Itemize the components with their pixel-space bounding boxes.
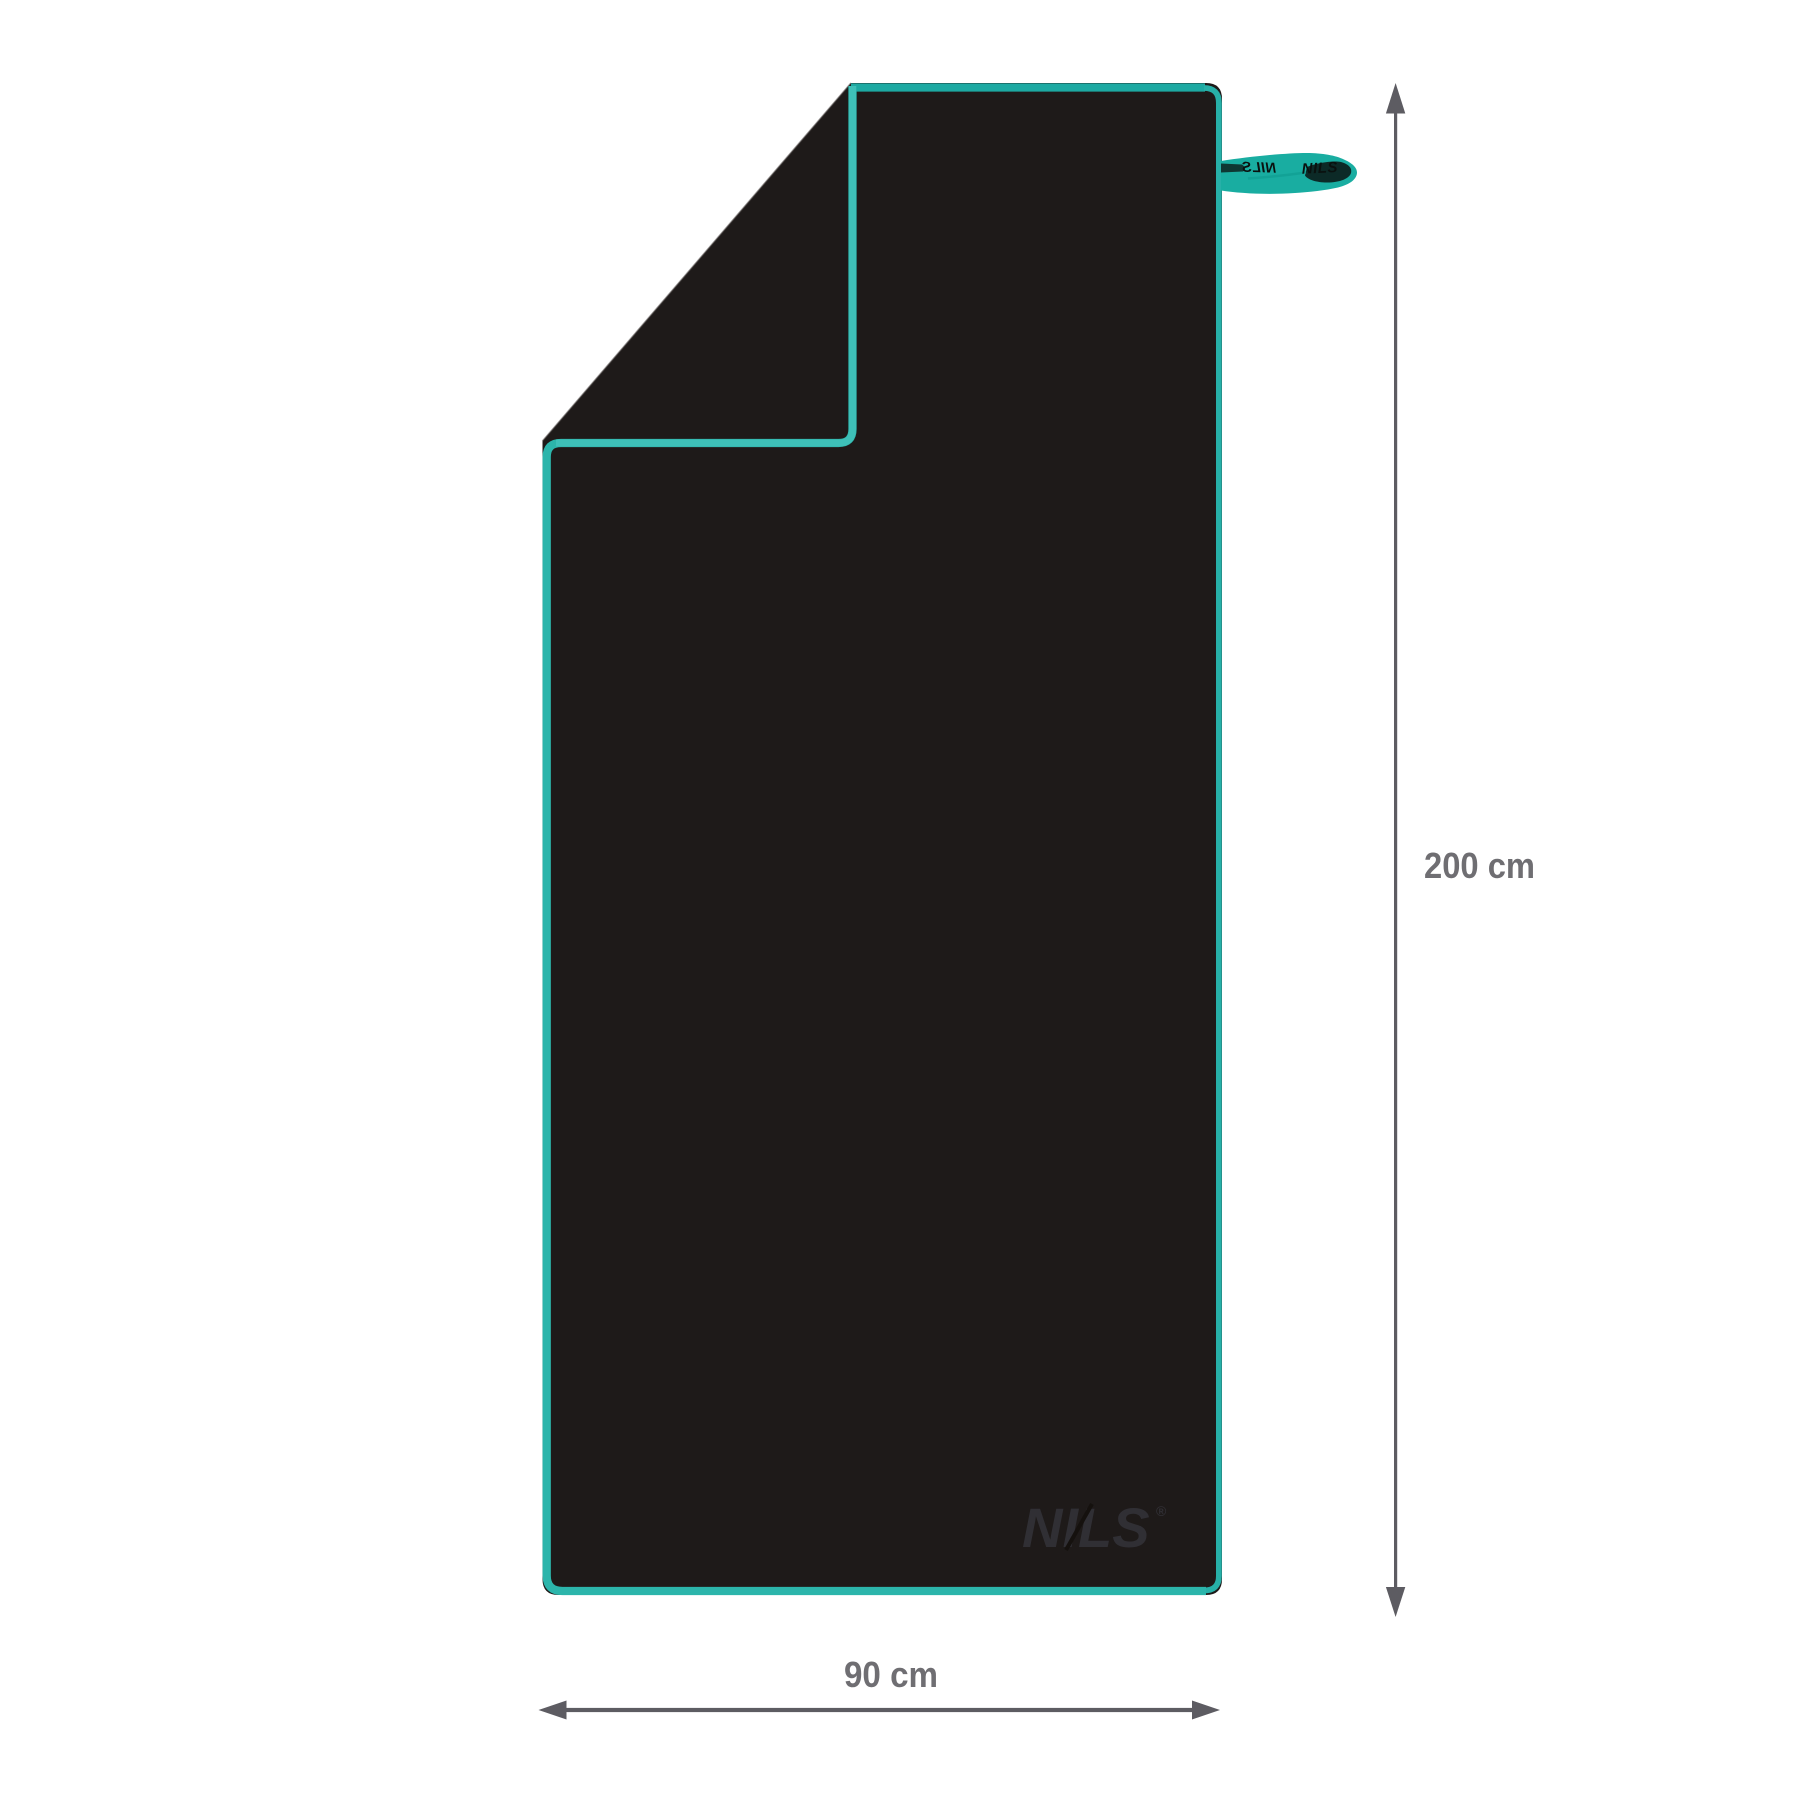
svg-text:90 cm: 90 cm	[844, 1654, 938, 1695]
svg-text:NILS: NILS	[1301, 159, 1338, 178]
svg-text:®: ®	[1156, 1503, 1167, 1519]
svg-text:NILS: NILS	[1022, 1496, 1150, 1559]
svg-text:NILS: NILS	[1241, 160, 1276, 177]
svg-text:200 cm: 200 cm	[1424, 845, 1535, 886]
